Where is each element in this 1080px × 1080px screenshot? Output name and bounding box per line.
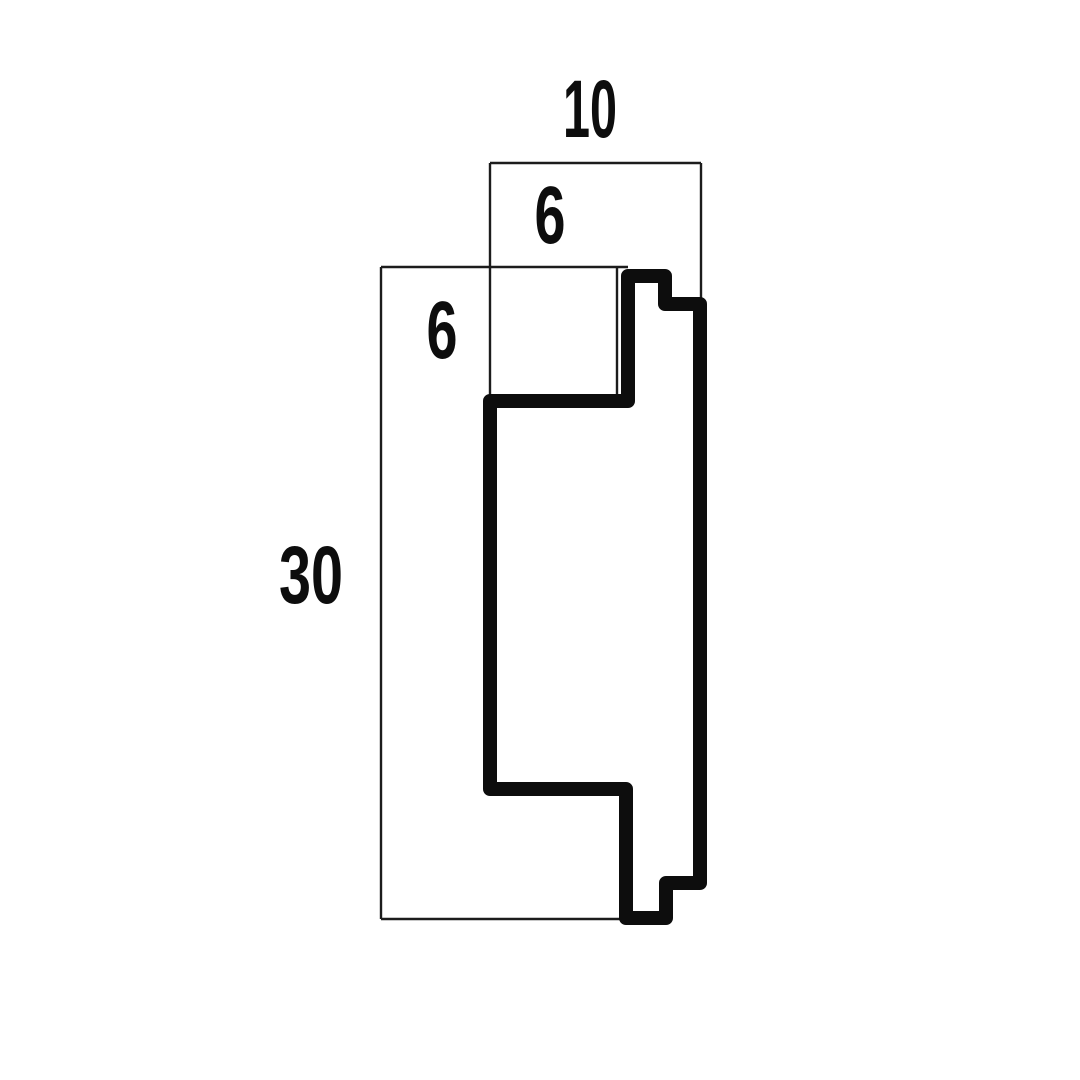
dimension-label-top-width: 10: [563, 64, 617, 155]
technical-drawing: 10 6 6 30: [0, 0, 1080, 1080]
dimension-label-side-depth: 6: [427, 285, 458, 376]
drawing-page: 10 6 6 30: [0, 0, 1080, 1080]
dimension-label-side-height: 30: [279, 530, 343, 621]
profile-cross-section-outline: [490, 276, 700, 918]
dimension-label-top-depth: 6: [535, 170, 566, 261]
